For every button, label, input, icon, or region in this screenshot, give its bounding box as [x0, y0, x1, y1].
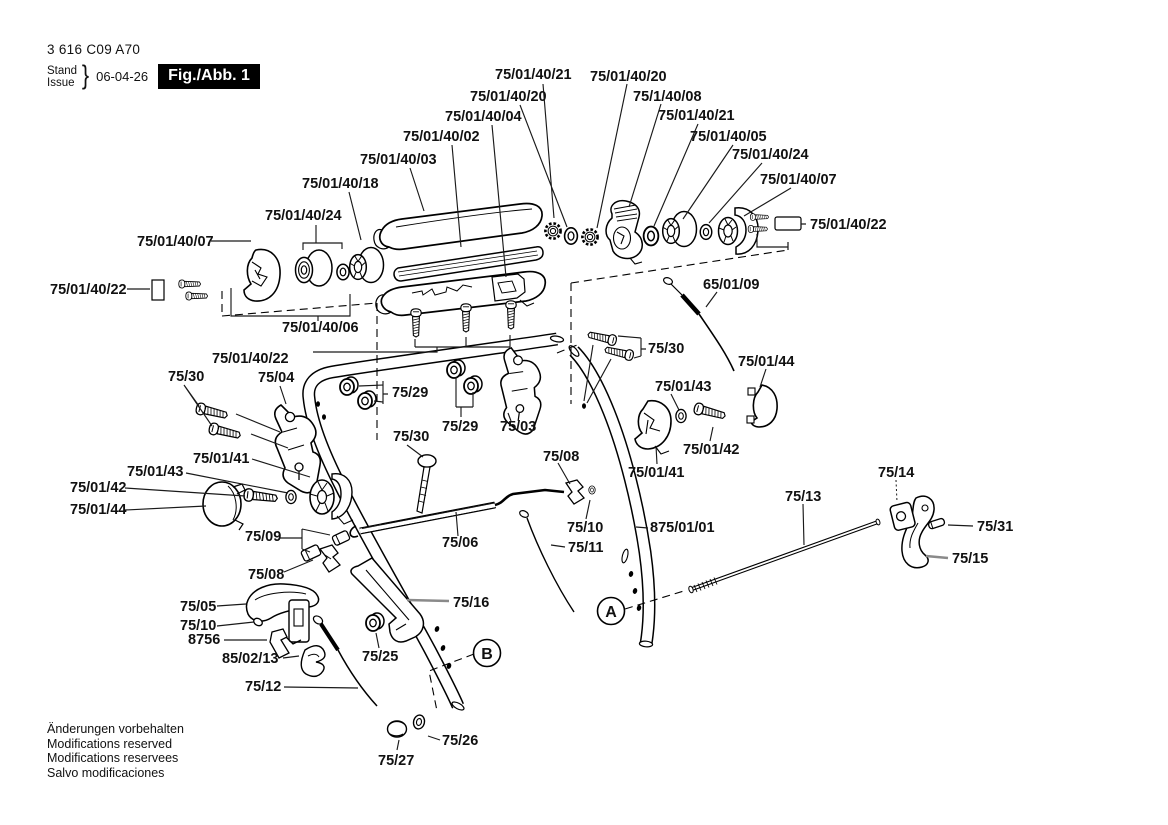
callout-washer-small-b: 75/01/40/20 [470, 89, 547, 105]
flange-nut-3 [447, 360, 465, 378]
callout-pulley-washer-a: 75/01/43 [655, 379, 711, 395]
diagram-canvas: 75/01/40/21 75/01/40/20 75/01/40/20 75/1… [0, 0, 1168, 825]
footer-line-es: Salvo modificaciones [47, 766, 184, 781]
callout-clamp-a: 75/08 [543, 449, 579, 465]
callout-grip-roller: 75/01/40/18 [302, 176, 379, 192]
callout-pulley-washer-b: 75/01/43 [127, 464, 183, 480]
carriage-bolt [417, 455, 436, 513]
washer-2 [644, 227, 659, 246]
callout-shell-screws-a: 75/01/40/22 [810, 217, 887, 233]
callout-control-rod: 75/13 [785, 489, 821, 505]
spring-clip [301, 646, 325, 677]
ring-washer [337, 264, 349, 280]
pulley-cap-right [635, 401, 671, 454]
cable-thin [519, 509, 574, 612]
end-screw-1 [750, 214, 768, 221]
callout-flange-nut-b: 75/29 [442, 419, 478, 435]
callout-bracket-strap: 75/16 [453, 595, 489, 611]
left-screw-2 [186, 292, 208, 300]
callout-bowden-cable: 65/01/09 [703, 277, 759, 293]
callout-roller: 75/01/40/05 [690, 129, 767, 145]
section-marker-b: B [474, 640, 501, 667]
flange-nut-1 [340, 377, 358, 395]
footer-line-en: Modifications reserved [47, 737, 184, 752]
hinge-screw-l2 [208, 422, 242, 441]
callout-pulley-a: 75/01/41 [628, 465, 684, 481]
callout-pin: 75/31 [977, 519, 1013, 535]
callout-link-rod: 75/06 [442, 535, 478, 551]
callout-cable-thin: 75/11 [568, 540, 604, 556]
flange-nut-4 [464, 376, 482, 394]
callout-hinge-right: 75/03 [500, 419, 536, 435]
washer-1 [565, 228, 578, 244]
callout-star-nut-b: 75/01/40/21 [658, 108, 735, 124]
sleeve-1 [301, 544, 322, 562]
callout-end-cap-b: 75/01/40/07 [137, 234, 214, 250]
cover-clip-right [747, 385, 777, 427]
callout-shell-screws-b: 75/01/40/22 [50, 282, 127, 298]
callout-lower-shell: 75/01/40/04 [445, 109, 522, 125]
callout-spring-clip: 85/02/13 [222, 651, 278, 667]
callout-lock-nut: 75/25 [362, 649, 398, 665]
callout-spacer-washer-a: 75/01/40/24 [732, 147, 809, 163]
left-screw-1 [179, 280, 201, 288]
callout-washer-a: 75/10 [567, 520, 603, 536]
rod-block [889, 502, 915, 531]
cap-nut [388, 721, 407, 737]
callout-hinge-left: 75/04 [258, 370, 294, 386]
callout-clamp-b: 75/08 [248, 567, 284, 583]
callout-star-nut-a: 75/01/40/21 [495, 67, 572, 83]
callout-screw-pair-a: 75/30 [648, 341, 684, 357]
pulley-screw-right [693, 402, 727, 422]
tube-screw-r2 [604, 344, 635, 361]
end-screw-2 [748, 225, 767, 232]
footer-line-de: Änderungen vorbehalten [47, 722, 184, 737]
leader-rod-block [896, 480, 897, 502]
callout-upper-shell: 75/01/40/03 [360, 152, 437, 168]
shell-screw-2 [461, 304, 471, 332]
callout-pulley-b: 75/01/41 [193, 451, 249, 467]
pulley-washer-right [676, 409, 686, 422]
leader-bracket-strap [407, 600, 449, 601]
callout-spacer-washer-b: 75/01/40/24 [265, 208, 342, 224]
callout-washer-small-a: 75/01/40/20 [590, 69, 667, 85]
control-rod [688, 519, 881, 594]
section-marker-b-label: B [481, 646, 493, 663]
section-marker-a-label: A [605, 604, 617, 621]
callout-cap-nut: 75/27 [378, 753, 414, 769]
washer-lower [412, 714, 426, 730]
callout-handle-tube-right: 875/01/01 [650, 520, 715, 536]
sleeve-2 [332, 530, 351, 546]
end-cap-left [244, 250, 280, 302]
callout-washer-lower: 75/26 [442, 733, 478, 749]
cam-lever-part [606, 201, 642, 264]
callout-screw-pair-c: 75/30 [393, 429, 429, 445]
callout-bearing-piece: 8756 [188, 632, 220, 648]
footer-line-fr: Modifications reservees [47, 751, 184, 766]
callout-shell-screws-c: 75/01/40/22 [212, 351, 289, 367]
grip-roller-18 [350, 248, 384, 283]
leader-trigger [926, 556, 948, 558]
screw-kit-box-right [775, 217, 801, 230]
callout-sleeve-set: 75/09 [245, 529, 281, 545]
washer-3 [700, 225, 712, 240]
cover-cap-left [203, 482, 245, 530]
hinge-screw-l1 [195, 402, 229, 421]
callout-cam-lever: 75/1/40/08 [633, 89, 702, 105]
callout-rod-block: 75/14 [878, 465, 914, 481]
legal-footer: Änderungen vorbehalten Modifications res… [47, 722, 184, 780]
star-nut-2 [582, 229, 597, 244]
callout-pulley-screw-a: 75/01/42 [683, 442, 739, 458]
tube-screw-r1 [587, 329, 618, 346]
shell-screw-3 [506, 301, 516, 329]
callout-flange-nut-a: 75/29 [392, 385, 428, 401]
callout-bushing-set: 75/01/40/06 [282, 320, 359, 336]
callout-trigger: 75/15 [952, 551, 988, 567]
pulley-screw-left [243, 488, 278, 504]
parts-diagram-page: 3 616 C09 A70 Stand Issue } 06-04-26 Fig… [0, 0, 1168, 825]
section-marker-a: A [598, 598, 625, 625]
callout-cover-cap-b: 75/01/44 [70, 502, 126, 518]
callout-screw-pair-b: 75/30 [168, 369, 204, 385]
roller-05 [663, 212, 697, 247]
callout-handle-bar: 75/01/40/02 [403, 129, 480, 145]
callout-cable-lower: 75/12 [245, 679, 281, 695]
bushing-24 [296, 250, 333, 286]
callout-pulley-screw-b: 75/01/42 [70, 480, 126, 496]
callout-end-cap-a: 75/01/40/07 [760, 172, 837, 188]
star-nut-1 [545, 223, 560, 238]
clamp-left [320, 545, 340, 572]
screw-kit-box-left [152, 280, 164, 300]
lock-nut [366, 613, 384, 631]
callout-brake-lever: 75/05 [180, 599, 216, 615]
shell-screw-1 [411, 309, 421, 337]
washer-right-small [589, 486, 595, 494]
clamp-right [566, 480, 584, 504]
flange-nut-2 [358, 391, 376, 409]
callout-cover-cap-a: 75/01/44 [738, 354, 794, 370]
